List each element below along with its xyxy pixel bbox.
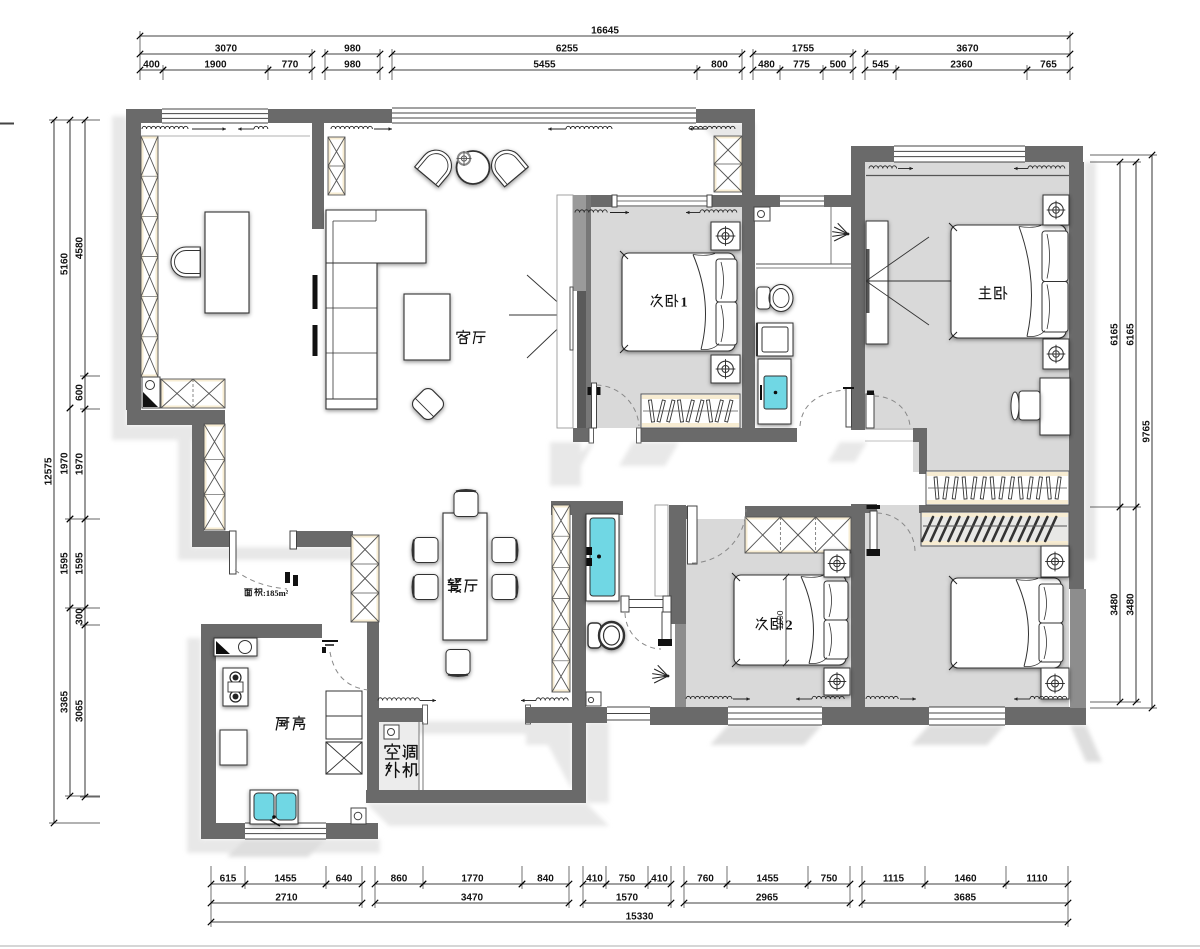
svg-text:1460: 1460 [954, 874, 977, 885]
svg-text:3065: 3065 [75, 699, 86, 722]
svg-text:980: 980 [344, 44, 361, 55]
svg-text:5160: 5160 [60, 252, 71, 275]
svg-text:1: 1 [681, 294, 688, 310]
svg-text:640: 640 [336, 874, 353, 885]
svg-text:840: 840 [537, 874, 554, 885]
svg-text:5455: 5455 [533, 60, 556, 71]
svg-text:1900: 1900 [204, 60, 227, 71]
svg-text:1110: 1110 [1026, 874, 1048, 885]
svg-text:480: 480 [758, 60, 775, 71]
svg-text:860: 860 [391, 874, 408, 885]
svg-text:1755: 1755 [792, 44, 815, 55]
svg-text:770: 770 [282, 60, 299, 71]
svg-text:3070: 3070 [215, 44, 238, 55]
svg-text::185m²: :185m² [263, 588, 289, 598]
svg-text:4580: 4580 [75, 236, 86, 259]
svg-text:2710: 2710 [275, 893, 298, 904]
svg-text:1455: 1455 [756, 874, 779, 885]
svg-text:545: 545 [872, 60, 889, 71]
svg-text:1500: 1500 [775, 610, 785, 629]
svg-text:3480: 3480 [1110, 593, 1121, 616]
svg-text:410: 410 [651, 874, 668, 885]
svg-text:765: 765 [1040, 60, 1057, 71]
svg-text:1455: 1455 [274, 874, 297, 885]
svg-text:2: 2 [786, 617, 793, 633]
svg-text:800: 800 [711, 60, 728, 71]
svg-text:12575: 12575 [44, 457, 55, 485]
svg-text:300: 300 [75, 608, 86, 625]
svg-text:2360: 2360 [950, 60, 973, 71]
svg-text:400: 400 [143, 60, 160, 71]
svg-text:6165: 6165 [1126, 323, 1137, 346]
svg-text:9765: 9765 [1142, 420, 1153, 443]
svg-text:6255: 6255 [556, 44, 579, 55]
svg-text:600: 600 [75, 384, 86, 401]
svg-text:6165: 6165 [1110, 323, 1121, 346]
svg-text:500: 500 [830, 60, 847, 71]
svg-text:2965: 2965 [756, 893, 779, 904]
svg-text:3365: 3365 [60, 690, 71, 713]
svg-text:1770: 1770 [461, 874, 484, 885]
svg-text:3480: 3480 [1126, 593, 1137, 616]
svg-text:750: 750 [821, 874, 838, 885]
svg-text:16645: 16645 [591, 26, 619, 37]
svg-text:750: 750 [619, 874, 636, 885]
svg-text:980: 980 [344, 60, 361, 71]
svg-text:3685: 3685 [954, 893, 977, 904]
svg-text:1970: 1970 [75, 452, 86, 475]
svg-text:3470: 3470 [461, 893, 484, 904]
svg-text:410: 410 [586, 874, 603, 885]
svg-text:3670: 3670 [956, 44, 979, 55]
svg-text:760: 760 [697, 874, 714, 885]
svg-text:1970: 1970 [60, 452, 71, 475]
svg-text:1595: 1595 [60, 552, 71, 575]
svg-text:1570: 1570 [616, 893, 639, 904]
svg-text:1595: 1595 [75, 552, 86, 575]
svg-text:1115: 1115 [883, 874, 905, 885]
svg-text:15330: 15330 [626, 912, 654, 923]
svg-text:775: 775 [793, 60, 810, 71]
svg-text:615: 615 [220, 874, 237, 885]
